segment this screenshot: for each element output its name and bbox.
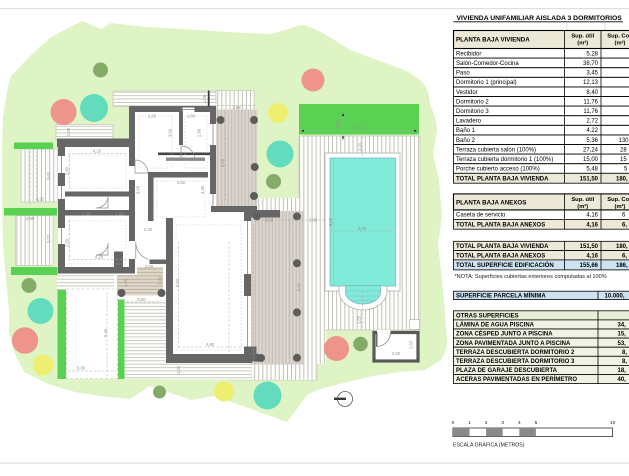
svg-text:1: 1: [468, 420, 471, 426]
svg-text:1,80: 1,80: [187, 113, 196, 118]
svg-text:3: 3: [501, 420, 504, 426]
svg-text:Terraza cubierta dormitorio 1: Terraza cubierta dormitorio 1 (100%): [456, 157, 553, 163]
svg-text:OTRAS SUPERFICIES: OTRAS SUPERFICIES: [456, 314, 519, 320]
svg-text:3,00: 3,00: [265, 217, 274, 222]
svg-text:8,40: 8,40: [586, 90, 598, 96]
svg-text:Vestidor: Vestidor: [456, 90, 478, 96]
svg-text:ESCALA GRÁFICA (METROS): ESCALA GRÁFICA (METROS): [453, 442, 525, 449]
svg-text:3,62: 3,62: [46, 171, 51, 180]
svg-text:2,72: 2,72: [586, 119, 598, 125]
svg-text:Caseta de servicio: Caseta de servicio: [456, 213, 506, 219]
svg-text:5,48: 5,48: [586, 167, 598, 173]
svg-text:8,: 8,: [622, 359, 627, 365]
svg-text:3,22: 3,22: [46, 234, 51, 243]
svg-text:186,: 186,: [616, 263, 628, 269]
svg-text:*NOTA: Superficies cubiertas e: *NOTA: Superficies cubiertas exteriores …: [455, 274, 607, 280]
svg-text:28: 28: [620, 147, 627, 153]
svg-text:Salón-Comedor-Cocina: Salón-Comedor-Cocina: [456, 61, 519, 67]
svg-text:(m²): (m²): [577, 203, 588, 210]
svg-text:LÁMINA DE AGUA PISCINA: LÁMINA DE AGUA PISCINA: [456, 322, 535, 329]
svg-text:2,00: 2,00: [309, 217, 318, 222]
svg-text:3,22: 3,22: [36, 196, 45, 201]
svg-text:4,22: 4,22: [586, 128, 598, 134]
svg-text:TOTAL PLANTA BAJA VIVIENDA: TOTAL PLANTA BAJA VIVIENDA: [456, 244, 549, 250]
svg-text:2,20: 2,20: [358, 142, 363, 151]
svg-text:Baño 1: Baño 1: [456, 128, 476, 134]
svg-text:Sup. Con: Sup. Con: [607, 197, 629, 203]
svg-text:8,00: 8,00: [328, 217, 333, 226]
svg-text:5,30: 5,30: [77, 365, 86, 370]
svg-text:TOTAL SUPERFICIE EDIFICACIÓN: TOTAL SUPERFICIE EDIFICACIÓN: [456, 261, 554, 269]
svg-text:PLANTA BAJA VIVIENDA: PLANTA BAJA VIVIENDA: [456, 37, 530, 44]
svg-text:1,05: 1,05: [202, 94, 207, 103]
svg-text:PLAZA DE GARAJE DESCUBIERTA: PLAZA DE GARAJE DESCUBIERTA: [456, 368, 558, 374]
svg-text:ZONA CÉSPED JUNTO A PISCINA: ZONA CÉSPED JUNTO A PISCINA: [456, 330, 553, 338]
svg-text:Sup. útil: Sup. útil: [571, 34, 594, 40]
svg-text:18,: 18,: [618, 368, 627, 374]
svg-text:38,70: 38,70: [583, 61, 599, 67]
svg-text:3,00: 3,00: [168, 128, 173, 137]
svg-text:3,45: 3,45: [136, 185, 141, 194]
svg-text:PLANTA BAJA ANEXOS: PLANTA BAJA ANEXOS: [456, 199, 526, 206]
svg-text:Baño 2: Baño 2: [456, 138, 476, 144]
svg-text:(m²): (m²): [577, 40, 588, 47]
svg-text:53,: 53,: [618, 341, 627, 347]
svg-text:(m²): (m²): [615, 40, 626, 47]
svg-text:10.000,: 10.000,: [605, 294, 625, 300]
svg-text:4,20: 4,20: [95, 254, 104, 259]
svg-text:6,: 6,: [622, 222, 627, 228]
svg-text:151,50: 151,50: [580, 244, 599, 250]
svg-text:2,48: 2,48: [82, 212, 91, 217]
svg-text:4: 4: [518, 420, 521, 426]
svg-text:1,00: 1,00: [66, 127, 71, 136]
svg-text:Lavadero: Lavadero: [456, 119, 482, 125]
svg-text:4,16: 4,16: [586, 213, 598, 219]
svg-text:2,98: 2,98: [197, 128, 202, 137]
svg-text:Paso: Paso: [456, 71, 470, 77]
svg-text:2,60: 2,60: [392, 351, 401, 356]
svg-text:27,24: 27,24: [583, 147, 599, 153]
svg-text:2,20: 2,20: [158, 276, 163, 285]
svg-text:2,00: 2,00: [335, 119, 340, 128]
svg-text:SUPERFICIE PARCELA MÍNIMA: SUPERFICIE PARCELA MÍNIMA: [456, 292, 546, 300]
svg-text:5,46: 5,46: [103, 328, 108, 337]
svg-text:4,16: 4,16: [586, 253, 598, 259]
svg-text:1,55: 1,55: [357, 315, 362, 324]
svg-text:4,90: 4,90: [206, 342, 215, 347]
svg-text:4,20: 4,20: [93, 148, 102, 153]
svg-text:0: 0: [452, 420, 455, 426]
svg-text:3,35: 3,35: [200, 185, 205, 194]
svg-text:TOTAL PLANTA BAJA ANEXOS: TOTAL PLANTA BAJA ANEXOS: [456, 222, 545, 228]
svg-text:8,: 8,: [622, 350, 627, 356]
svg-text:Porche cubierto acceso (100%): Porche cubierto acceso (100%): [456, 167, 540, 173]
svg-text:151,50: 151,50: [580, 176, 599, 182]
svg-text:3,62: 3,62: [177, 180, 186, 185]
svg-text:2,58: 2,58: [232, 105, 241, 110]
svg-text:3,45: 3,45: [586, 71, 598, 77]
svg-text:11,76: 11,76: [583, 99, 598, 105]
svg-text:4,00: 4,00: [358, 226, 367, 231]
svg-text:TOTAL PLANTA BAJA ANEXOS: TOTAL PLANTA BAJA ANEXOS: [456, 253, 545, 259]
svg-text:6,: 6,: [622, 253, 627, 259]
svg-text:180,: 180,: [616, 244, 628, 250]
svg-text:5,28: 5,28: [586, 51, 598, 57]
svg-text:15: 15: [620, 157, 627, 163]
svg-text:TOTAL PLANTA BAJA VIVIENDA: TOTAL PLANTA BAJA VIVIENDA: [456, 176, 549, 182]
svg-text:Sup. Con: Sup. Con: [607, 34, 629, 40]
svg-text:2,80: 2,80: [65, 166, 70, 175]
svg-text:2,40: 2,40: [144, 227, 153, 232]
svg-text:2,80: 2,80: [148, 113, 157, 118]
svg-text:2: 2: [485, 420, 488, 426]
svg-text:4,16: 4,16: [586, 222, 598, 228]
svg-text:130: 130: [619, 138, 629, 144]
svg-text:12,13: 12,13: [583, 80, 599, 86]
svg-text:Recibidor: Recibidor: [456, 51, 481, 57]
svg-text:TERRAZA DESCUBIERTA DORMITORIO: TERRAZA DESCUBIERTA DORMITORIO 3: [456, 359, 575, 365]
svg-text:VIVIENDA UNIFAMILIAR AISLADA 3: VIVIENDA UNIFAMILIAR AISLADA 3 DORMITORI…: [457, 15, 623, 22]
svg-text:11,76: 11,76: [583, 109, 598, 115]
svg-text:5,36: 5,36: [586, 138, 598, 144]
svg-text:2,80: 2,80: [65, 238, 70, 247]
svg-text:7,55: 7,55: [355, 126, 364, 131]
svg-text:1,00: 1,00: [176, 365, 181, 374]
svg-text:3,00: 3,00: [137, 297, 146, 302]
svg-text:1,60: 1,60: [115, 212, 124, 217]
svg-text:ZONA PAVIMENTADA JUNTO A PISCI: ZONA PAVIMENTADA JUNTO A PISCINA: [456, 341, 571, 347]
svg-text:Sup. útil: Sup. útil: [571, 197, 594, 203]
svg-text:2,00: 2,00: [145, 264, 154, 269]
svg-text:180,: 180,: [616, 176, 628, 182]
svg-text:5: 5: [535, 420, 538, 426]
svg-text:Dormitorio 2: Dormitorio 2: [456, 99, 489, 105]
svg-text:1,40: 1,40: [123, 278, 128, 287]
svg-text:Dormitorio 1 (principal): Dormitorio 1 (principal): [456, 80, 517, 86]
svg-text:Dormitorio 3: Dormitorio 3: [456, 109, 489, 115]
svg-text:ACERAS PAVIMENTADAS EN PERÍMET: ACERAS PAVIMENTADAS EN PERÍMETRO: [456, 375, 577, 383]
svg-text:15,: 15,: [618, 332, 627, 338]
svg-text:10: 10: [610, 420, 616, 426]
svg-text:34,: 34,: [618, 323, 627, 329]
svg-text:6,00: 6,00: [220, 158, 225, 167]
svg-text:155,66: 155,66: [580, 263, 599, 269]
svg-text:2,50: 2,50: [26, 216, 35, 221]
svg-text:15,00: 15,00: [583, 157, 599, 163]
svg-text:8,60: 8,60: [175, 278, 180, 287]
svg-text:1,60: 1,60: [409, 340, 414, 349]
svg-text:40,: 40,: [618, 377, 627, 383]
svg-text:(m²): (m²): [615, 203, 626, 210]
svg-text:TERRAZA DESCUBIERTA DORMITORIO: TERRAZA DESCUBIERTA DORMITORIO 2: [456, 350, 575, 356]
svg-text:Terraza cubierta salón (100%): Terraza cubierta salón (100%): [456, 147, 536, 153]
svg-text:9,40: 9,40: [297, 282, 302, 291]
